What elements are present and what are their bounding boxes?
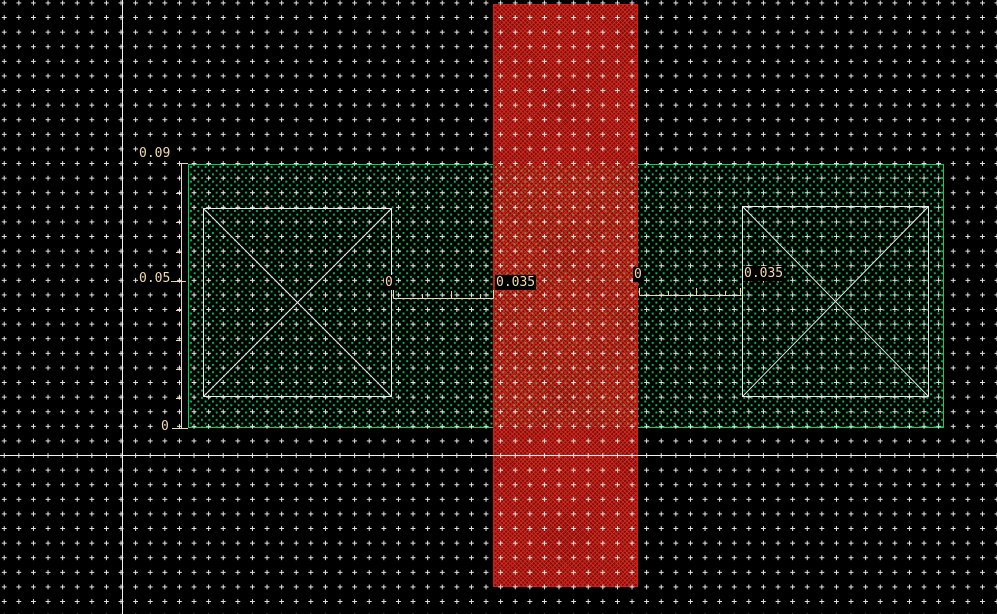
dimension-label-zero-left: 0: [160, 419, 170, 434]
gap-left-width-label: 0.035: [495, 275, 536, 290]
gap-right-width-label: 0.035: [743, 266, 784, 281]
contact-x-icon: [204, 209, 391, 396]
contact-left[interactable]: [203, 208, 392, 397]
contact-x-icon: [743, 207, 928, 396]
dimension-label-005: 0.05: [138, 271, 171, 286]
ruler-left-vertical: [171, 164, 188, 429]
contact-right[interactable]: [742, 206, 929, 397]
gap-left-origin-label: 0: [384, 275, 394, 290]
layout-canvas[interactable]: 0.09 0.05 0 0 0.035 0 0.035: [0, 0, 997, 614]
axis-vertical-line: [122, 0, 123, 614]
poly-active-overlap: [494, 165, 637, 427]
axis-horizontal-line: [0, 455, 997, 456]
gap-right-origin-label: 0: [633, 267, 643, 282]
dimension-label-009: 0.09: [138, 146, 171, 161]
